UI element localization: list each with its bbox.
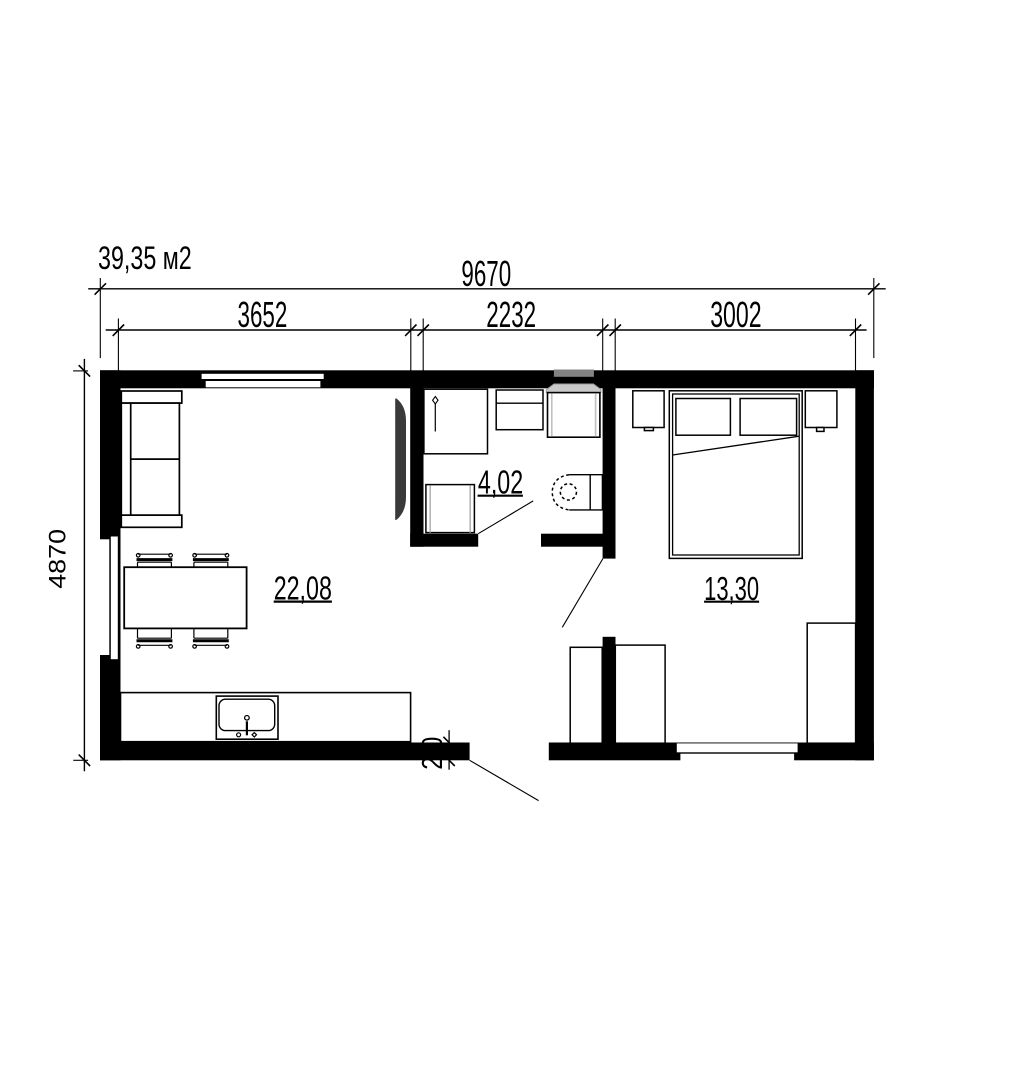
svg-text:3652: 3652 — [238, 294, 288, 335]
svg-text:2,0: 2,0 — [417, 737, 449, 770]
svg-text:3002: 3002 — [710, 294, 761, 335]
svg-text:2232: 2232 — [486, 294, 536, 335]
svg-text:9670: 9670 — [461, 253, 511, 294]
svg-text:4870: 4870 — [45, 529, 72, 589]
svg-text:39,35 м2: 39,35 м2 — [98, 240, 192, 276]
